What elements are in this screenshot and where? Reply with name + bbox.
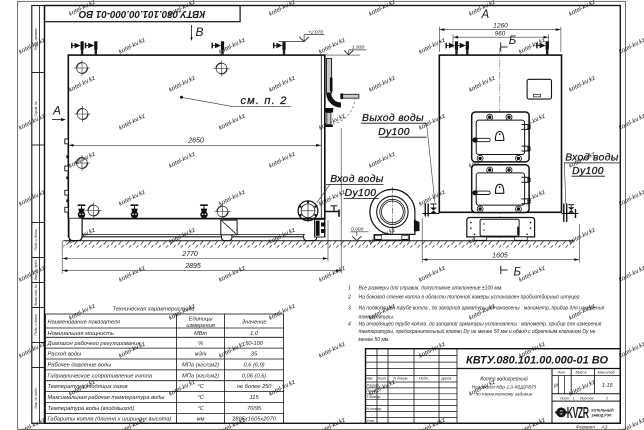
svg-text:температуры, предохранительный: температуры, предохранительный клапан Dу…: [359, 328, 596, 335]
svg-text:КВТУ.080.101.00.000-01 ВО: КВТУ.080.101.00.000-01 ВО: [78, 8, 205, 19]
svg-text:2770: 2770: [181, 251, 198, 258]
svg-text:1.930: 1.930: [352, 44, 365, 50]
svg-text:°С: °С: [197, 395, 204, 401]
svg-text:70/95: 70/95: [247, 406, 262, 412]
svg-text:Б: Б: [509, 35, 517, 47]
svg-text:Подп.: Подп.: [419, 377, 429, 381]
svg-text:менее 50 мм.: менее 50 мм.: [359, 337, 390, 343]
svg-text:На подводящей трубе котла , д: На подводящей трубе котла , до запорной …: [359, 305, 605, 312]
svg-text:2: 2: [347, 295, 351, 301]
svg-text:Справ. №: Справ. №: [34, 101, 38, 117]
svg-text:Взам. инв. №: Взам. инв. №: [34, 284, 38, 305]
svg-text:Dy100: Dy100: [345, 188, 377, 199]
svg-text:Температура уходящих газов: Температура уходящих газов: [48, 384, 128, 390]
svg-text:Подп. и дата: Подп. и дата: [34, 314, 38, 335]
svg-text:Максимальная рабочая температу: Максимальная рабочая температура воды: [48, 395, 166, 401]
svg-text:0.000: 0.000: [351, 226, 364, 232]
svg-text:2895х1605х2070: 2895х1605х2070: [231, 417, 276, 423]
svg-text:по техническому задание: по техническому задание: [475, 392, 532, 397]
svg-text:Подп. и дата: Подп. и дата: [34, 229, 38, 250]
svg-text:+2.070: +2.070: [308, 29, 323, 35]
svg-text:А: А: [52, 103, 61, 117]
svg-text:2: 2: [605, 396, 608, 400]
svg-text:Масштаб: Масштаб: [598, 370, 616, 374]
svg-text:Все размеры для справок, допус: Все размеры для справок, допустимое откл…: [359, 285, 503, 291]
svg-text:Б: Б: [514, 267, 522, 279]
svg-text:Лист: Лист: [559, 396, 570, 400]
svg-text:мм: мм: [197, 417, 205, 423]
svg-text:Техническая характеристика: Техническая характеристика: [112, 307, 195, 313]
svg-text:Дата: Дата: [441, 377, 452, 381]
svg-text:ЗАВОД РЭП: ЗАВОД РЭП: [592, 414, 613, 418]
svg-text:Dy100: Dy100: [572, 166, 604, 177]
svg-text:2650: 2650: [187, 138, 204, 145]
svg-text:Диапазон рабочего регулировани: Диапазон рабочего регулирования: [47, 341, 141, 347]
svg-text:Котел водогрейный: Котел водогрейный: [480, 376, 528, 383]
svg-text:Выход воды: Выход воды: [362, 113, 424, 124]
svg-text:Лит.: Лит.: [557, 370, 567, 374]
svg-text:Листов: Листов: [579, 396, 594, 400]
svg-text:1: 1: [348, 285, 351, 291]
svg-text:1: 1: [573, 396, 575, 400]
svg-text:измерения: измерения: [186, 323, 214, 329]
svg-text:И: И: [554, 384, 558, 390]
svg-text:960: 960: [495, 31, 506, 38]
svg-text:3: 3: [348, 306, 351, 312]
svg-text:Единицы: Единицы: [189, 316, 214, 322]
svg-text:МПа (кгс/см2): МПа (кгс/см2): [182, 363, 219, 369]
svg-text:Рабочее давление воды: Рабочее давление воды: [48, 363, 113, 369]
svg-text:см. п. 2: см. п. 2: [240, 95, 287, 107]
svg-text:Номинальная мощность: Номинальная мощность: [48, 331, 114, 337]
svg-text:А3: А3: [601, 424, 608, 430]
svg-text:Пров.: Пров.: [367, 389, 377, 393]
svg-text:Расход воды: Расход воды: [48, 352, 82, 358]
svg-text:Разраб.: Разраб.: [367, 383, 380, 387]
svg-text:Формат: Формат: [576, 424, 595, 430]
svg-text:В: В: [196, 25, 204, 39]
svg-text:4: 4: [348, 322, 351, 328]
svg-text:На отводящей трубе котла ,до з: На отводящей трубе котла ,до запорной ар…: [359, 321, 602, 328]
svg-text:м3/ч: м3/ч: [195, 352, 207, 358]
svg-text:%: %: [198, 341, 203, 347]
svg-text:Лист: Лист: [377, 377, 387, 381]
svg-text:Инв. № дубл.: Инв. № дубл.: [34, 260, 38, 281]
svg-text:0,6 (6,0): 0,6 (6,0): [244, 363, 265, 369]
svg-text:Вход воды: Вход воды: [330, 174, 384, 185]
svg-text:Значение: Значение: [242, 320, 267, 326]
svg-text:1:15: 1:15: [602, 383, 614, 389]
svg-text:температуры.: температуры.: [359, 314, 395, 320]
svg-text:Масса: Масса: [576, 370, 587, 374]
svg-text:N докум.: N докум.: [394, 377, 409, 381]
svg-text:не более 250: не более 250: [237, 384, 273, 390]
svg-text:2895: 2895: [184, 263, 201, 270]
svg-text:Heatexpert-КВр-1,0-КБД(РВР): Heatexpert-КВр-1,0-КБД(РВР): [472, 384, 537, 389]
svg-text:1260: 1260: [493, 23, 508, 30]
svg-text:А: А: [481, 9, 490, 21]
svg-text:Изм.: Изм.: [366, 377, 373, 381]
svg-text:КВТУ.080.101.00.000-01 ВО: КВТУ.080.101.00.000-01 ВО: [466, 354, 608, 366]
svg-text:КОТЕЛЬНЫЙ: КОТЕЛЬНЫЙ: [592, 409, 615, 413]
svg-text:Dy100: Dy100: [378, 127, 410, 138]
svg-text:Н.контр.: Н.контр.: [367, 407, 383, 411]
svg-text:МВт: МВт: [194, 331, 208, 337]
svg-text:Наименование показателя: Наименование показателя: [48, 320, 121, 326]
svg-text:Вход воды: Вход воды: [565, 153, 619, 164]
svg-text:Инв. № подл.: Инв. № подл.: [34, 387, 38, 408]
svg-text:МПа (кгс/см2): МПа (кгс/см2): [182, 373, 219, 379]
svg-text:°С: °С: [197, 384, 204, 390]
svg-text:Перв. примен.: Перв. примен.: [34, 28, 38, 51]
svg-text:°С: °С: [197, 406, 204, 412]
svg-text:0,06 (0,6): 0,06 (0,6): [242, 373, 266, 379]
svg-text:Гидравлическое сопротивление к: Гидравлическое сопротивление котла: [48, 373, 153, 379]
svg-text:Т.контр.: Т.контр.: [367, 395, 382, 399]
svg-text:50-100: 50-100: [245, 341, 264, 347]
svg-text:35: 35: [251, 352, 258, 358]
svg-text:1605: 1605: [492, 252, 508, 259]
svg-text:115: 115: [250, 395, 260, 401]
svg-text:Температура воды (вход/выход): Температура воды (вход/выход): [48, 406, 135, 412]
svg-text:1,0: 1,0: [250, 331, 259, 337]
svg-text:KVZR: KVZR: [567, 403, 590, 422]
svg-text:Утв.: Утв.: [367, 419, 375, 423]
svg-text:Габариты котла (длинна х ширин: Габариты котла (длинна х ширина х высота…: [48, 417, 172, 423]
svg-text:На боковой стенке котла в обла: На боковой стенке котла в области топочн…: [359, 294, 580, 301]
